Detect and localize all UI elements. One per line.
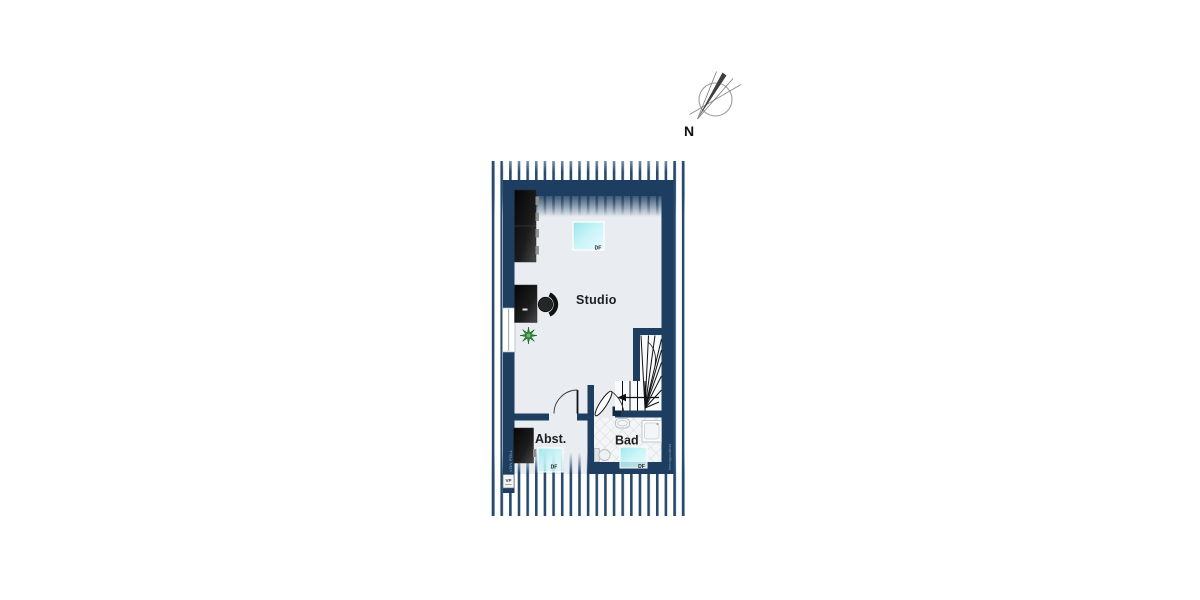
wall-abst-bad-divider	[588, 385, 595, 474]
hatch-band-right	[674, 161, 685, 516]
sink	[616, 419, 630, 429]
hatch-band-left	[491, 161, 503, 516]
compass-needle-line-1	[698, 72, 717, 120]
skylight-label-studio: DF	[595, 246, 602, 252]
skylight-label-bad: DF	[638, 464, 645, 470]
toilet	[595, 449, 611, 462]
desk	[515, 285, 538, 323]
wall-interior-left-seg	[515, 414, 550, 421]
compass-north-label: N	[684, 123, 694, 139]
wardrobe	[515, 190, 539, 262]
shower	[642, 421, 662, 443]
wall-right	[662, 180, 674, 474]
skylight-label-abst: DF	[551, 465, 558, 471]
watermark-right: Immogrundriss	[668, 444, 672, 470]
wall-stair-top	[633, 328, 662, 335]
compass-needle-line-2	[698, 79, 734, 120]
abst-cabinet	[514, 428, 537, 463]
compass-rose: N	[684, 72, 741, 140]
wall-interior-right-seg	[577, 414, 588, 421]
logo-text: VP	[505, 478, 511, 483]
window-left-wall	[503, 308, 516, 352]
room-label-bad: Bad	[615, 434, 639, 448]
logo-box: VP	[503, 475, 514, 489]
floorplan-page: DF DF DF Studio Abst. Bad VON POLL Immog…	[0, 0, 1200, 600]
room-label-studio: Studio	[576, 293, 617, 307]
plant	[520, 327, 537, 344]
floorplan-drawing: DF DF DF Studio Abst. Bad VON POLL Immog…	[0, 0, 1200, 600]
watermark-left: VON POLL	[508, 449, 513, 472]
wall-stair-left	[633, 335, 640, 381]
wall-left-upper	[503, 180, 515, 308]
wall-stair-bottom	[615, 411, 662, 418]
room-label-abst: Abst.	[535, 432, 566, 446]
